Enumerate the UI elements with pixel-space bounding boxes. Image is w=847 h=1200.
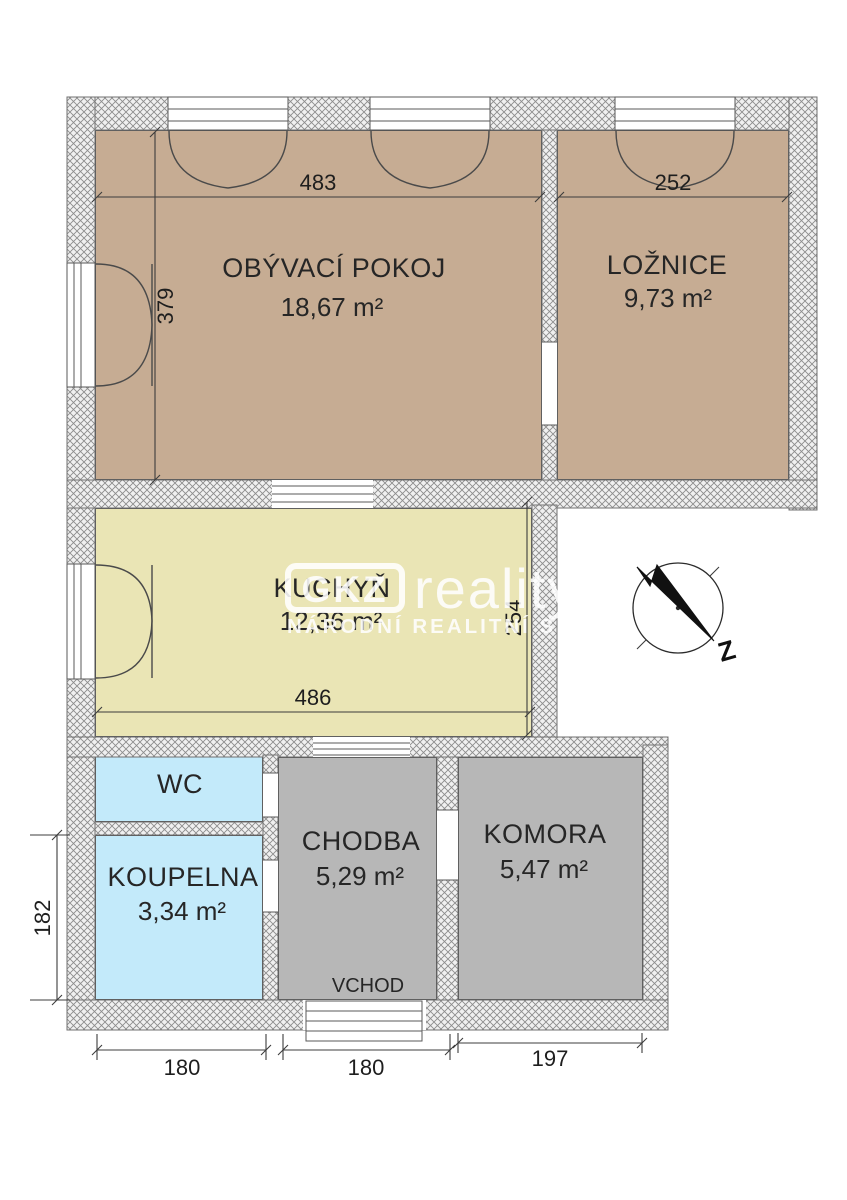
label-wc: WC [157,769,203,799]
dim-hallway-width: 180 [348,1055,385,1080]
wall-living-kitchen [67,480,817,508]
door-bathroom [263,860,278,912]
dim-living-width: 483 [300,170,337,195]
label-entrance: VCHOD [332,975,404,997]
label-bedroom: LOŽNICE [607,249,728,280]
entrance-opening [303,1000,426,1041]
compass-direction-letter: Z [715,634,739,667]
dim-kitchen-width: 486 [295,685,332,710]
area-living-room: 18,67 m² [281,292,384,322]
area-bathroom: 3,34 m² [138,896,226,926]
dim-bedroom-width: 252 [655,170,692,195]
door-wc [263,773,278,817]
window-bedroom [615,97,735,130]
door-living-kitchen [272,480,373,508]
dim-living-height: 379 [153,288,178,325]
dim-storage-width: 197 [532,1046,569,1071]
wall-right-upper [789,97,817,510]
door-living-left [67,263,95,387]
wall-right-lower [643,745,668,1030]
watermark-logo-text: GKZ [301,569,388,610]
watermark-tagline-text: NÁRODNÍ REALITNÍ SLUŽBY [287,614,640,638]
dim-bathroom-width: 180 [164,1055,201,1080]
label-hallway: CHODBA [302,826,421,856]
wall-wc-bathroom [95,822,263,835]
door-kitchen-hallway [313,737,410,757]
label-bathroom: KOUPELNA [107,862,258,892]
label-storage: KOMORA [483,819,606,849]
watermark-brand-text: reality [414,557,577,620]
compass-needle [637,565,714,641]
label-living-room: OBÝVACÍ POKOJ [222,253,446,283]
window-living-2 [370,97,490,130]
window-living-1 [168,97,288,130]
door-kitchen-left [67,564,95,679]
area-bedroom: 9,73 m² [624,283,712,313]
watermark: GKZ reality NÁRODNÍ REALITNÍ SLUŽBY [287,557,640,638]
floorplan-svg: 483 252 379 486 254 182 180 180 197 OBÝV… [0,0,847,1200]
north-arrow-icon: Z [633,563,739,668]
floorplan-canvas: 483 252 379 486 254 182 180 180 197 OBÝV… [0,0,847,1200]
wall-living-bedroom [542,130,557,480]
door-living-bedroom [542,342,557,425]
dim-bathroom-height: 182 [30,900,55,937]
door-storage [437,810,458,880]
area-hallway: 5,29 m² [316,861,404,891]
area-storage: 5,47 m² [500,854,588,884]
